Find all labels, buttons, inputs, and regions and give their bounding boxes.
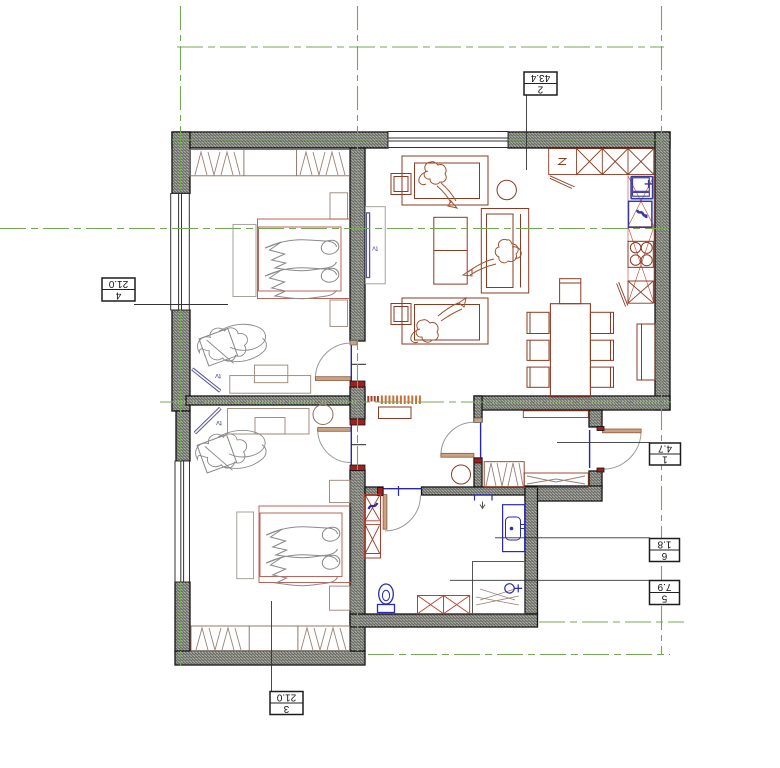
svg-text:tv: tv — [215, 372, 221, 381]
svg-text:7.9: 7.9 — [657, 581, 671, 592]
svg-text:21.0: 21.0 — [108, 278, 128, 289]
svg-text:21.0: 21.0 — [276, 692, 296, 703]
svg-text:tv: tv — [372, 245, 378, 254]
svg-text:4.7: 4.7 — [658, 443, 672, 454]
svg-text:5: 5 — [661, 593, 667, 604]
svg-text:43.4: 43.4 — [530, 72, 550, 83]
svg-text:1.8: 1.8 — [657, 539, 671, 550]
svg-text:2: 2 — [537, 84, 543, 95]
svg-text:6: 6 — [661, 550, 667, 561]
svg-text:4: 4 — [115, 290, 121, 301]
svg-text:3: 3 — [283, 703, 289, 714]
svg-text:1: 1 — [662, 454, 668, 465]
svg-text:tv: tv — [216, 419, 222, 428]
